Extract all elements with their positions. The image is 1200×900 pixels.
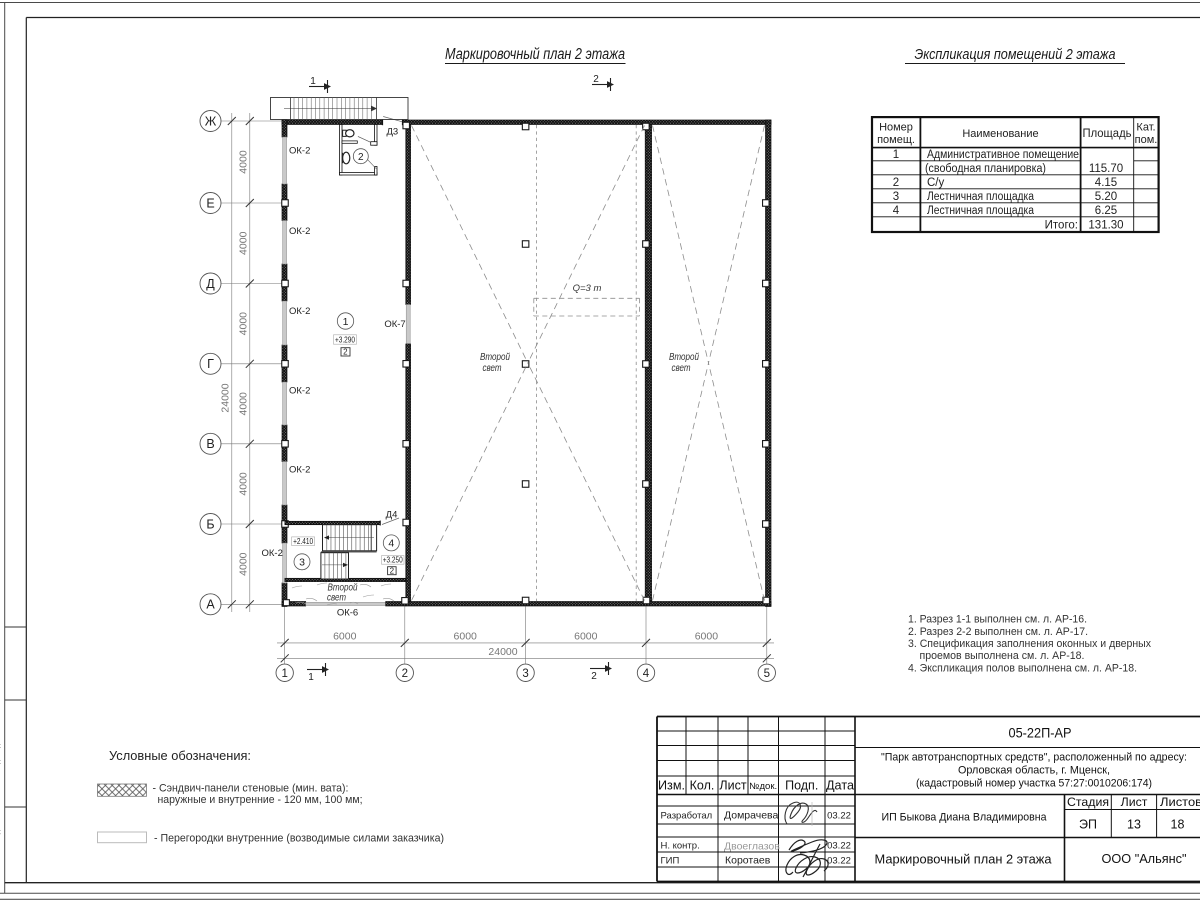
svg-text:свет: свет <box>672 363 691 374</box>
svg-text:Дата: Дата <box>826 779 854 793</box>
svg-text:(свободная планировка): (свободная планировка) <box>925 163 1046 175</box>
svg-text:- Перегородки внутренние (возв: - Перегородки внутренние (возводимые сил… <box>154 833 444 845</box>
svg-text:2: 2 <box>390 566 395 575</box>
svg-text:115.70: 115.70 <box>1089 163 1123 175</box>
svg-text:"Парк автотранспортных средств: "Парк автотранспортных средств", располо… <box>881 752 1187 764</box>
svg-text:Стадия: Стадия <box>1067 795 1109 809</box>
svg-text:С/у: С/у <box>927 177 945 189</box>
svg-text:3. Спецификация заполнения око: 3. Спецификация заполнения оконных и две… <box>908 638 1152 650</box>
svg-text:+2.410: +2.410 <box>293 536 313 546</box>
svg-text:1: 1 <box>310 76 316 87</box>
svg-text:Второй: Второй <box>480 352 510 363</box>
svg-text:ООО "Альянс": ООО "Альянс" <box>1102 852 1187 866</box>
svg-text:(кадастровый номер участка 57:: (кадастровый номер участка 57:27:0010206… <box>916 778 1152 790</box>
svg-text:24000: 24000 <box>220 383 232 412</box>
svg-text:+3.290: +3.290 <box>335 334 355 344</box>
svg-text:ОК-2: ОК-2 <box>289 386 310 397</box>
svg-text:2: 2 <box>893 177 899 189</box>
svg-text:наружные и внутренние - 120 мм: наружные и внутренние - 120 мм, 100 мм; <box>158 794 363 806</box>
svg-text:Н. контр.: Н. контр. <box>661 841 700 852</box>
svg-text:Лестничная площадка: Лестничная площадка <box>927 205 1035 217</box>
svg-text:Листов: Листов <box>1160 795 1200 809</box>
svg-text:ОК-2: ОК-2 <box>289 226 310 237</box>
svg-text:5: 5 <box>764 668 770 680</box>
svg-text:1. Разрез 1-1 выполнен см. л.: 1. Разрез 1-1 выполнен см. л. АР-16. <box>908 614 1087 626</box>
svg-text:1: 1 <box>281 668 287 680</box>
svg-text:Инв. № подл.: Инв. № подл. <box>0 825 1 866</box>
svg-text:3: 3 <box>522 668 528 680</box>
svg-text:1: 1 <box>343 316 349 328</box>
svg-text:Домрачева: Домрачева <box>724 810 779 822</box>
svg-text:Разработал: Разработал <box>661 811 713 822</box>
svg-text:свет: свет <box>327 593 346 604</box>
svg-text:Лестничная площадка: Лестничная площадка <box>927 191 1035 203</box>
svg-text:Итого:: Итого: <box>1045 220 1078 232</box>
svg-text:4: 4 <box>643 668 650 680</box>
svg-text:ОК-2: ОК-2 <box>289 306 310 317</box>
svg-text:4.15: 4.15 <box>1095 177 1117 189</box>
svg-text:2: 2 <box>343 348 348 357</box>
svg-text:Лист: Лист <box>1121 795 1148 809</box>
svg-text:ОК-6: ОК-6 <box>337 608 358 619</box>
svg-text:Г: Г <box>207 357 214 371</box>
svg-text:03.22: 03.22 <box>827 856 851 867</box>
svg-text:Лист: Лист <box>719 779 746 793</box>
svg-text:2: 2 <box>591 671 597 682</box>
svg-text:+3.250: +3.250 <box>383 555 403 565</box>
svg-text:Наименование: Наименование <box>962 128 1038 140</box>
svg-text:1: 1 <box>308 672 314 683</box>
svg-text:2: 2 <box>593 74 599 85</box>
svg-text:131.30: 131.30 <box>1088 220 1123 232</box>
svg-text:05-22П-АР: 05-22П-АР <box>1009 725 1072 741</box>
svg-text:Q=3 т: Q=3 т <box>573 283 602 294</box>
svg-text:4000: 4000 <box>238 552 250 576</box>
svg-text:6000: 6000 <box>695 631 719 643</box>
svg-text:ИП Быкова Диана Владимировна: ИП Быкова Диана Владимировна <box>882 812 1048 824</box>
svg-text:2: 2 <box>402 668 408 680</box>
svg-text:Условные обозначения:: Условные обозначения: <box>109 748 251 763</box>
svg-text:5.20: 5.20 <box>1095 191 1117 203</box>
svg-text:6000: 6000 <box>454 631 478 643</box>
svg-text:Экспликация помещений 2 этажа: Экспликация помещений 2 этажа <box>915 46 1116 63</box>
svg-text:ЭП: ЭП <box>1079 818 1097 832</box>
svg-text:помещ.: помещ. <box>877 134 915 146</box>
svg-text:А: А <box>206 598 215 612</box>
svg-text:ОК-7: ОК-7 <box>384 319 405 330</box>
svg-text:Изм.: Изм. <box>658 779 685 793</box>
svg-text:пом.: пом. <box>1135 134 1158 146</box>
svg-text:3: 3 <box>893 191 899 203</box>
svg-text:4000: 4000 <box>238 231 250 255</box>
svg-text:3: 3 <box>299 557 305 569</box>
svg-text:№док.: №док. <box>749 781 777 791</box>
svg-text:Е: Е <box>206 196 214 210</box>
svg-text:Кат.: Кат. <box>1136 122 1155 134</box>
svg-text:18: 18 <box>1171 818 1185 832</box>
svg-text:4000: 4000 <box>238 472 250 496</box>
svg-text:4: 4 <box>388 538 394 550</box>
svg-text:проемов выполнена см. л. АР-18: проемов выполнена см. л. АР-18. <box>920 650 1085 662</box>
svg-text:Д: Д <box>206 277 215 291</box>
svg-text:Кол.: Кол. <box>690 779 715 793</box>
svg-text:4000: 4000 <box>238 392 250 416</box>
svg-text:4: 4 <box>893 205 900 217</box>
svg-text:В: В <box>206 437 214 451</box>
svg-text:ОК-2: ОК-2 <box>262 548 283 559</box>
svg-text:Площадь: Площадь <box>1083 128 1132 140</box>
svg-text:2: 2 <box>358 152 364 163</box>
svg-text:Административное помещение: Административное помещение <box>927 149 1079 161</box>
svg-text:Орловская область, г. Мценск,: Орловская область, г. Мценск, <box>958 765 1110 777</box>
svg-text:ГИП: ГИП <box>661 856 680 867</box>
svg-text:1: 1 <box>893 149 899 161</box>
svg-text:Коротаев: Коротаев <box>725 855 771 867</box>
svg-text:Д3: Д3 <box>386 127 398 138</box>
svg-text:Подп. и дата: Подп. и дата <box>0 733 1 772</box>
svg-text:ОК-2: ОК-2 <box>289 465 310 476</box>
svg-text:03.22: 03.22 <box>827 841 851 852</box>
svg-text:03.22: 03.22 <box>827 811 851 822</box>
svg-text:6.25: 6.25 <box>1095 205 1117 217</box>
svg-text:Двоеглазов: Двоеглазов <box>724 841 780 853</box>
svg-text:Второй: Второй <box>669 352 699 363</box>
svg-text:свет: свет <box>483 363 502 374</box>
svg-text:Подп.: Подп. <box>785 779 818 793</box>
svg-text:Маркировочный план 2 этажа: Маркировочный план 2 этажа <box>875 852 1053 867</box>
svg-text:6000: 6000 <box>574 631 598 643</box>
svg-text:Б: Б <box>206 517 214 531</box>
svg-text:Маркировочный план 2 этажа: Маркировочный план 2 этажа <box>445 46 625 63</box>
svg-text:24000: 24000 <box>488 646 517 658</box>
svg-text:Взам. инв. №: Взам. инв. № <box>0 643 1 683</box>
svg-text:ОК-2: ОК-2 <box>289 146 310 157</box>
svg-text:Ж: Ж <box>205 114 217 128</box>
svg-text:4000: 4000 <box>238 312 250 336</box>
svg-text:- Сэндвич-панели стеновые (мин: - Сэндвич-панели стеновые (мин. вата): <box>153 783 349 795</box>
svg-text:Д4: Д4 <box>386 510 398 521</box>
svg-text:6000: 6000 <box>333 631 357 643</box>
svg-text:4000: 4000 <box>238 150 250 174</box>
svg-text:2. Разрез 2-2 выполнен см. л.: 2. Разрез 2-2 выполнен см. л. АР-17. <box>908 626 1088 638</box>
svg-text:4. Экспликация полов выполнена: 4. Экспликация полов выполнена см. л. АР… <box>908 662 1137 674</box>
svg-text:Номер: Номер <box>879 122 913 134</box>
svg-text:13: 13 <box>1127 818 1141 832</box>
